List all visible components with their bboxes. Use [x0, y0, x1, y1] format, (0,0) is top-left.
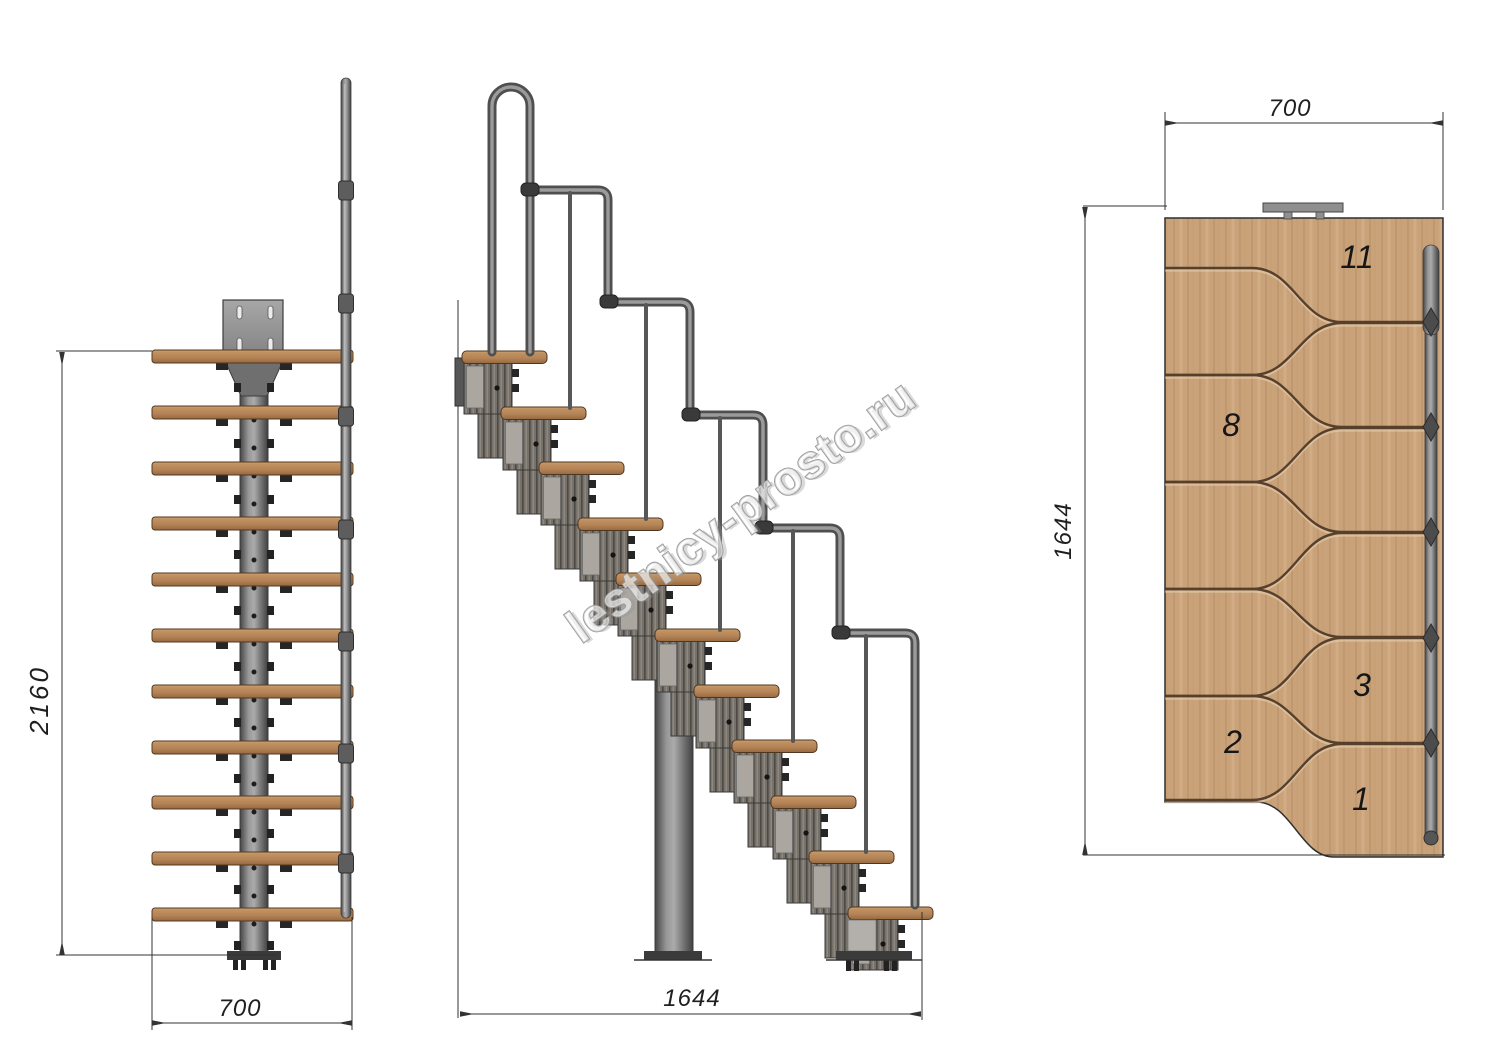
- front-handrail-post: [339, 78, 354, 918]
- drawing-canvas: 2160 700: [0, 0, 1500, 1060]
- plan-length-label: 1644: [1050, 502, 1077, 559]
- watermark: lestnicy-prosto.ru lestnicy-prosto.ru: [556, 367, 929, 655]
- front-view: 2160 700: [24, 78, 354, 1030]
- plan-step-number-1: 1: [1352, 781, 1370, 817]
- side-length-label: 1644: [663, 985, 720, 1012]
- front-base-plate: [227, 951, 281, 970]
- front-height-label: 2160: [24, 665, 54, 736]
- plan-step-number-8: 8: [1222, 407, 1240, 443]
- plan-handrail: [1423, 245, 1439, 845]
- plan-view: 11 8 3 2 1 700 1644: [1050, 95, 1445, 857]
- plan-step-number-11: 11: [1340, 239, 1373, 275]
- plan-step-number-2: 2: [1223, 724, 1242, 760]
- front-width-label: 700: [218, 995, 261, 1022]
- plan-wood-slab: [1165, 218, 1443, 857]
- staircase-technical-drawing: 2160 700: [0, 0, 1500, 1060]
- plan-step-number-3: 3: [1353, 667, 1371, 703]
- plan-wall-bracket: [1263, 203, 1343, 219]
- plan-width-label: 700: [1268, 95, 1311, 122]
- plan-width-dimension: [1165, 112, 1443, 210]
